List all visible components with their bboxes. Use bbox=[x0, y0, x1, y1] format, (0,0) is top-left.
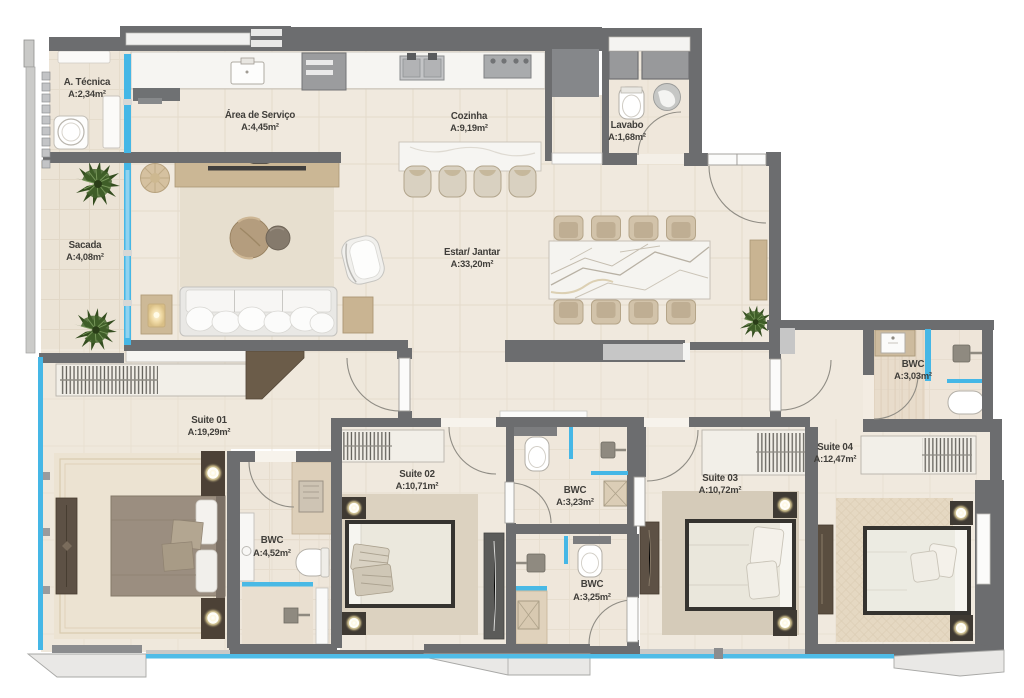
svg-text:A:3,23m²: A:3,23m² bbox=[556, 497, 594, 507]
svg-text:BWC: BWC bbox=[581, 579, 604, 590]
svg-text:BWC: BWC bbox=[902, 359, 925, 370]
svg-text:A:19,29m²: A:19,29m² bbox=[188, 427, 231, 437]
svg-text:Cozinha: Cozinha bbox=[451, 111, 488, 122]
svg-text:BWC: BWC bbox=[261, 535, 284, 546]
svg-text:Suite 03: Suite 03 bbox=[702, 473, 738, 484]
svg-text:A. Técnica: A. Técnica bbox=[64, 77, 111, 88]
svg-text:BWC: BWC bbox=[564, 485, 587, 496]
svg-text:A:2,34m²: A:2,34m² bbox=[68, 89, 106, 99]
svg-text:A:4,08m²: A:4,08m² bbox=[66, 252, 104, 262]
svg-text:A:12,47m²: A:12,47m² bbox=[814, 454, 857, 464]
svg-text:A:10,72m²: A:10,72m² bbox=[699, 485, 742, 495]
svg-text:Área de Serviço: Área de Serviço bbox=[225, 110, 296, 121]
svg-text:A:9,19m²: A:9,19m² bbox=[450, 123, 488, 133]
svg-text:A:4,52m²: A:4,52m² bbox=[253, 548, 291, 558]
svg-text:Sacada: Sacada bbox=[69, 240, 103, 251]
svg-text:Suite 01: Suite 01 bbox=[191, 415, 227, 426]
svg-text:A:33,20m²: A:33,20m² bbox=[451, 259, 494, 269]
svg-text:A:3,25m²: A:3,25m² bbox=[573, 592, 611, 602]
svg-text:Suite 02: Suite 02 bbox=[399, 469, 435, 480]
svg-text:A:3,03m²: A:3,03m² bbox=[894, 371, 932, 381]
svg-text:Estar/ Jantar: Estar/ Jantar bbox=[444, 247, 501, 258]
svg-text:A:4,45m²: A:4,45m² bbox=[241, 122, 279, 132]
svg-text:Lavabo: Lavabo bbox=[611, 120, 644, 131]
svg-text:A:1,68m²: A:1,68m² bbox=[608, 132, 646, 142]
svg-text:A:10,71m²: A:10,71m² bbox=[396, 481, 439, 491]
svg-text:Suite 04: Suite 04 bbox=[817, 442, 853, 453]
